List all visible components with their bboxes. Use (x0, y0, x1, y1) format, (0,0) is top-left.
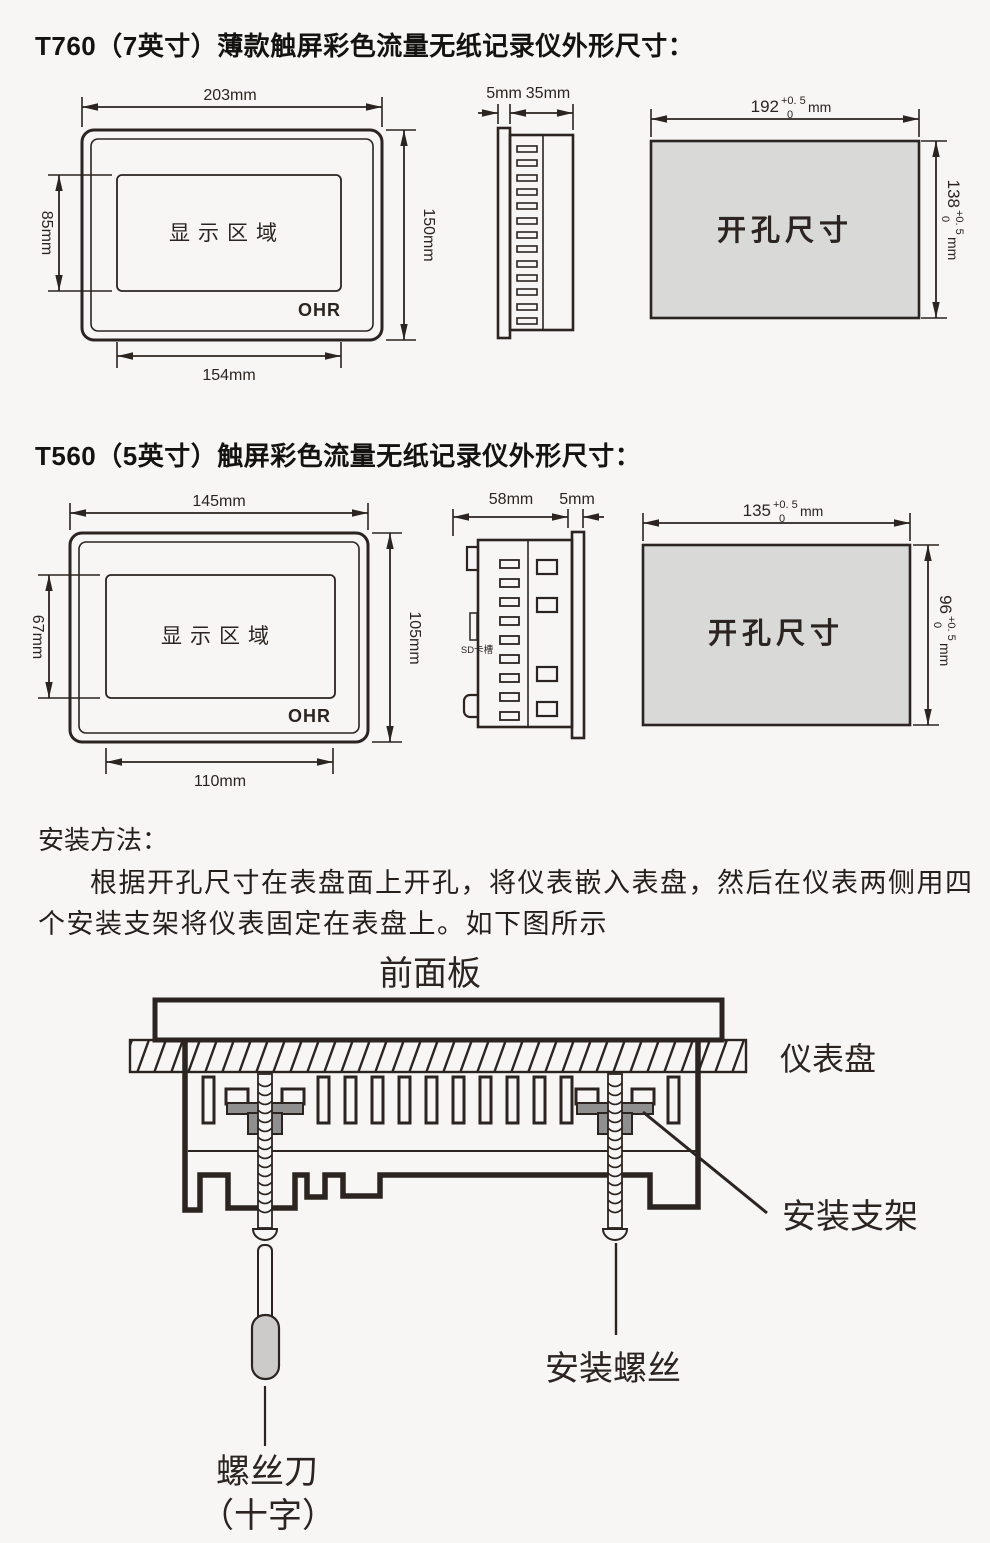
t760-title: T760（7英寸）薄款触屏彩色流量无纸记录仪外形尺寸： (35, 26, 694, 63)
screw-label: 安装螺丝 (545, 1350, 681, 1388)
t560-side-foot (464, 695, 478, 717)
install-paragraph-line1: 根据开孔尺寸在表盘面上开孔，将仪表嵌入表盘，然后在仪表两侧用四 (90, 861, 974, 900)
instrument-panel-label: 仪表盘 (780, 1041, 876, 1077)
t760-cutout-height: 138 (944, 180, 963, 208)
t760-dim-display-width: 154mm (202, 367, 255, 384)
t760-cutout-label: 开孔尺寸 (717, 214, 853, 247)
t760-cutout-height-tol-up: +0. 5 (953, 210, 965, 235)
t760-dim-height: 150mm (420, 208, 437, 261)
t560-cutout-height-tol-up: +0. 5 (945, 616, 957, 641)
t560-side-top-notch (467, 547, 478, 570)
t760-drawings: 显示区域 OHR 203mm 85mm 150mm (0, 80, 990, 412)
mounting-screw-right (603, 1074, 627, 1240)
t560-dim-height: 105mm (406, 611, 423, 664)
t760-cutout: 开孔尺寸 192 +0. 5 0 mm 138 +0. 5 0 mm (651, 95, 965, 318)
installation-diagram: 前面板 仪表盘 (0, 943, 990, 1543)
t560-cutout-height-tol-dn: 0 (931, 622, 943, 628)
t560-dim-bezel: 5mm (559, 491, 595, 508)
t560-cutout-width-unit: mm (800, 503, 823, 519)
t560-side-terminals (537, 560, 557, 716)
bracket-leader-line (643, 1112, 767, 1213)
t760-dim-bezel: 5mm (486, 85, 522, 102)
t760-display-label: 显示区域 (169, 221, 285, 245)
mounting-screw-left (253, 1074, 277, 1240)
t560-front-view: 显示区域 OHR 145mm 67mm 105mm 110mm (29, 493, 423, 790)
t560-cutout-label: 开孔尺寸 (708, 617, 844, 650)
t760-cutout-height-tol-dn: 0 (939, 216, 951, 222)
t560-drawings: 显示区域 OHR 145mm 67mm 105mm 110mm (0, 490, 990, 802)
t760-side-bezel (498, 128, 510, 338)
t760-dim-display-height: 85mm (38, 211, 55, 255)
t560-cutout-width-tol-up: +0. 5 (773, 499, 798, 511)
t760-logo: OHR (298, 300, 341, 320)
t760-cutout-width-tol-dn: 0 (787, 109, 793, 121)
t760-dim-width: 203mm (203, 87, 256, 104)
screwdriver-type-label: （十字） (200, 1497, 336, 1535)
screwdriver-handle (252, 1315, 279, 1379)
screwdriver-shaft (258, 1245, 272, 1321)
t560-title: T560（5英寸）触屏彩色流量无纸记录仪外形尺寸： (35, 436, 641, 473)
t760-front-view: 显示区域 OHR 203mm 85mm 150mm (38, 87, 437, 384)
t560-cutout-height: 96 (936, 595, 955, 614)
t760-cutout-width-unit: mm (808, 99, 831, 115)
t560-side-vents (500, 560, 519, 720)
t560-side-view: SD卡槽 58mm (453, 491, 604, 738)
screwdriver (252, 1245, 279, 1446)
dimension-drawing-page: T760（7英寸）薄款触屏彩色流量无纸记录仪外形尺寸： 显示区域 OHR 203… (0, 0, 990, 1543)
front-panel (155, 1000, 722, 1040)
t560-sd-slot (470, 613, 477, 640)
front-panel-label: 前面板 (379, 955, 481, 993)
t760-dim-depth: 35mm (526, 85, 570, 102)
t760-cutout-height-unit: mm (945, 237, 961, 260)
instrument-panel (130, 1040, 746, 1072)
t560-cutout-width-tol-dn: 0 (779, 513, 785, 525)
t760-side-view: 5mm 35mm (478, 85, 573, 338)
screwdriver-label: 螺丝刀 (216, 1454, 318, 1491)
t760-cutout-width-tol-up: +0. 5 (781, 95, 806, 107)
install-heading: 安装方法： (38, 820, 168, 857)
t560-display-label: 显示区域 (161, 624, 277, 648)
t560-dim-display-height: 67mm (29, 615, 46, 659)
t560-side-bezel (572, 532, 584, 738)
install-paragraph-line2: 个安装支架将仪表固定在表盘上。如下图所示 (38, 902, 608, 941)
bracket-label: 安装支架 (782, 1198, 918, 1236)
t560-dim-width: 145mm (192, 493, 245, 510)
t560-cutout-width: 135 (743, 501, 771, 520)
t560-logo: OHR (288, 706, 331, 726)
t560-dim-display-width: 110mm (194, 773, 246, 790)
t560-dim-depth: 58mm (489, 491, 533, 508)
t760-cutout-width: 192 (751, 97, 779, 116)
t560-cutout-height-unit: mm (937, 643, 953, 666)
t560-cutout: 开孔尺寸 135 +0. 5 0 mm 96 +0. 5 0 mm (643, 499, 957, 725)
t560-sd-label: SD卡槽 (461, 644, 494, 656)
t760-side-vents (517, 146, 537, 324)
